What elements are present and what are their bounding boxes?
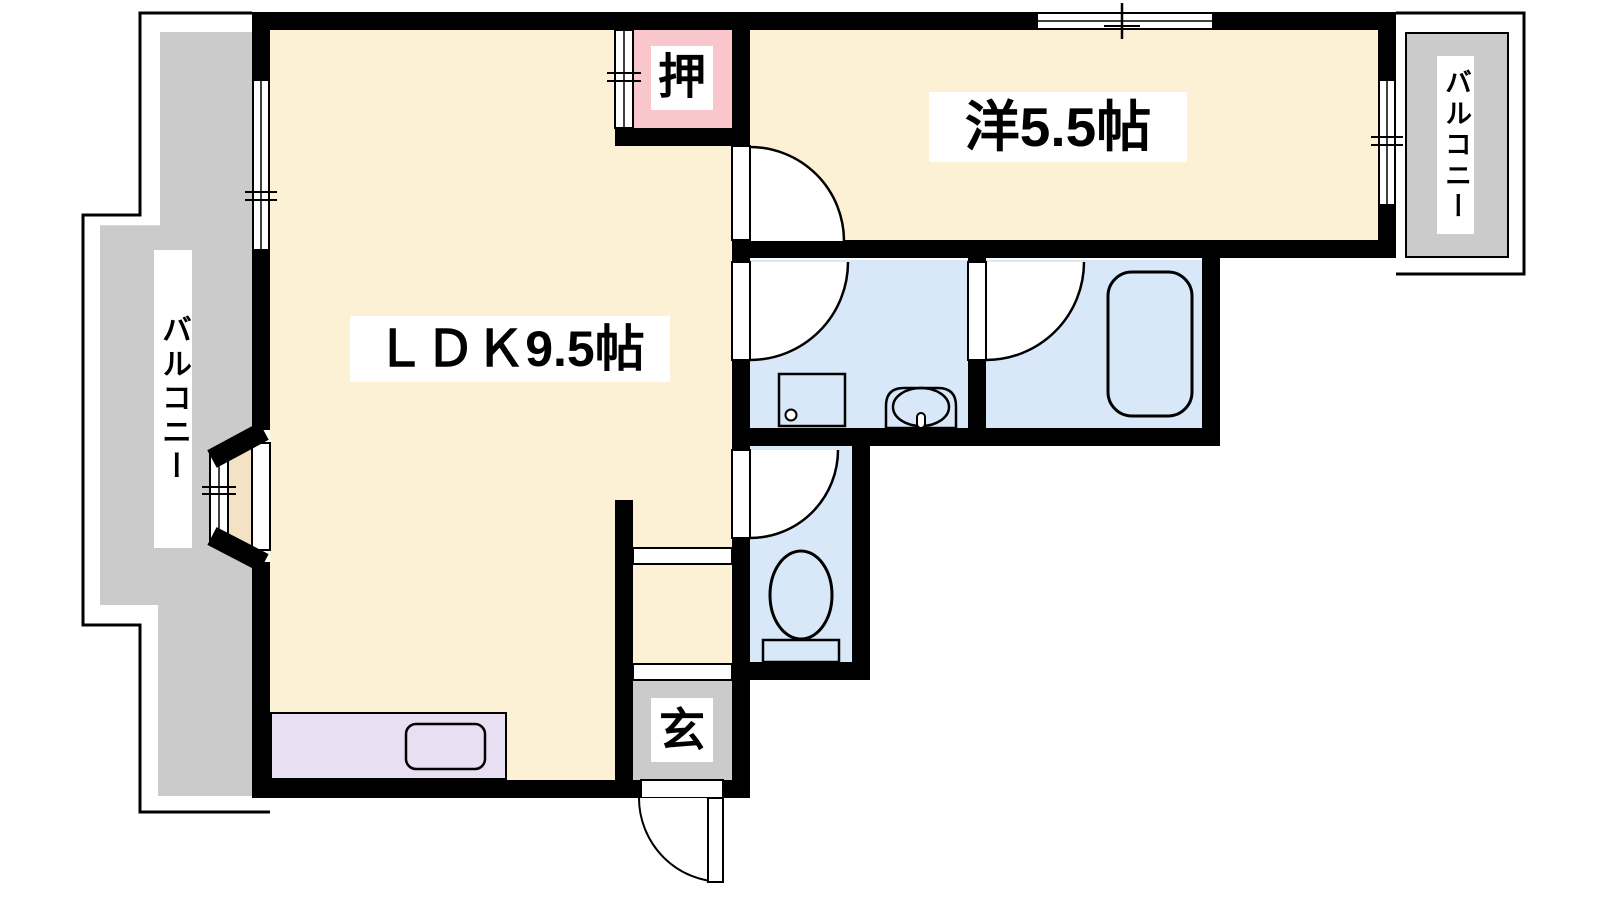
bathroom-floor	[986, 260, 1202, 428]
kitchen-counter	[270, 712, 507, 780]
front-door	[639, 798, 723, 882]
closet-label: 押	[651, 46, 713, 110]
balcony-left-label: バルコニー	[154, 250, 192, 548]
wall-closet-right	[732, 30, 750, 146]
wall-corridor	[615, 500, 633, 798]
balcony-right-label: バルコニー	[1437, 56, 1474, 234]
wall-bath-right	[1202, 258, 1220, 446]
wall-entrance-stub-left	[615, 780, 641, 798]
floor-plan: ＬＤＫ9.5帖 洋5.5帖 押 玄 バルコニー バルコニー	[0, 0, 1600, 900]
ldk-label: ＬＤＫ9.5帖	[350, 316, 670, 382]
wall-washbath-bottom	[732, 428, 1220, 446]
wall-ldk-bottom	[252, 780, 633, 798]
wall-wash-bath-divider	[968, 258, 986, 446]
wall-western-bottom	[732, 240, 1396, 258]
entrance-label: 玄	[651, 698, 713, 762]
wall-entrance-stub-right	[723, 780, 750, 798]
wall-left-upper	[252, 12, 270, 430]
western-room-label: 洋5.5帖	[929, 92, 1187, 162]
wall-toilet-right	[852, 446, 870, 680]
wall-left-lower	[252, 562, 270, 798]
wall-closet-bottom	[615, 128, 750, 146]
wall-top	[252, 12, 1396, 30]
front-door-threshold	[641, 780, 723, 798]
wall-toilet-bottom	[732, 662, 870, 680]
washroom-floor	[750, 260, 968, 428]
toilet-floor	[750, 446, 852, 662]
bay-window-inner-opening	[252, 443, 270, 550]
wall-core-a	[732, 240, 750, 262]
wall-western-right	[1378, 12, 1396, 258]
